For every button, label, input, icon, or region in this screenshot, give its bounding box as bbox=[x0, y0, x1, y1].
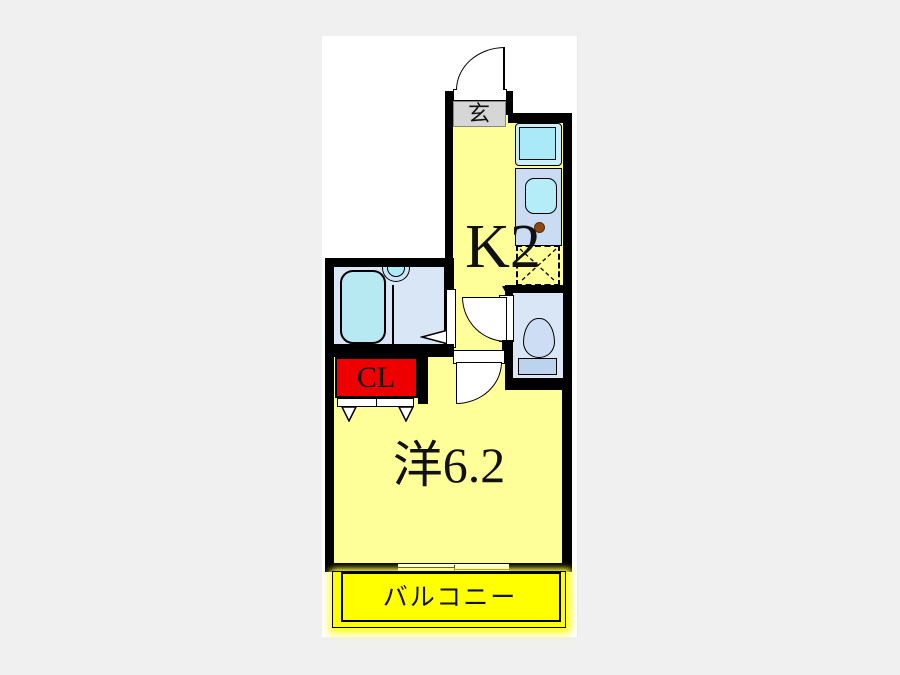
window-sash-right bbox=[454, 569, 510, 570]
balcony: バルコニー bbox=[332, 571, 566, 628]
kitchen-label: K2 bbox=[465, 216, 541, 278]
room-label: 洋6.2 bbox=[393, 440, 506, 490]
toilet-bowl bbox=[523, 318, 555, 358]
kitchen-counter-basin bbox=[525, 178, 557, 214]
east-wall bbox=[563, 113, 572, 390]
floorplan-page: { "page": { "background": "#f0f0f0", "ca… bbox=[0, 0, 900, 675]
balcony-label: バルコニー bbox=[383, 586, 518, 611]
room-left-wall bbox=[325, 348, 334, 572]
entrance-door-opening bbox=[453, 89, 507, 101]
hanger-pin-left-icon bbox=[341, 406, 357, 422]
room-top-wall bbox=[325, 344, 454, 357]
hanger-pin-right-icon bbox=[398, 406, 414, 422]
genkan-label: 玄 bbox=[468, 103, 490, 125]
bathtub bbox=[340, 270, 386, 344]
closet-side-wall bbox=[418, 356, 428, 404]
room-right-wall bbox=[562, 390, 572, 572]
kitchen-sink-unit bbox=[515, 123, 562, 166]
kitchen-left-wall bbox=[445, 91, 453, 288]
kitchen-sink-basin bbox=[519, 127, 556, 160]
window-sash-left bbox=[398, 567, 454, 568]
closet-label: CL bbox=[357, 363, 395, 393]
entrance-door-arc bbox=[456, 47, 505, 90]
floorplan-canvas: 玄 K2 CL 洋6.2 バルコニー bbox=[322, 36, 578, 637]
bathroom-door-opening bbox=[446, 289, 456, 348]
closet-hanger-divider bbox=[376, 399, 377, 406]
bath-partition-line bbox=[392, 285, 394, 344]
toilet-tank bbox=[518, 358, 557, 375]
